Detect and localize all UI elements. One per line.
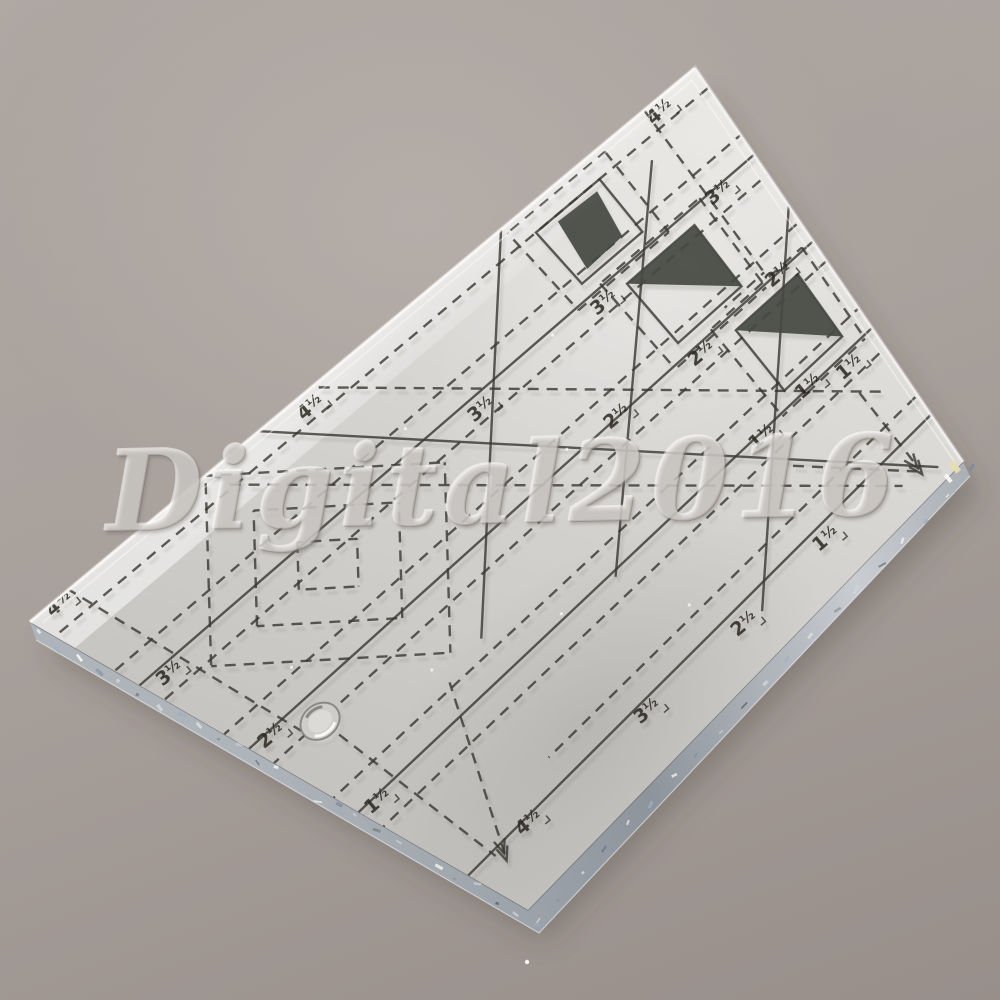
dust-speck [551,334,554,337]
dust-speck [565,448,568,451]
bevel-sparkle [177,714,185,716]
dust-speck [688,603,691,606]
ruler-product-photo: 4½3½2½1½4½3½2½1½3½2½1½4½3½2½1½3½2½1½4½ [0,0,1000,1000]
bevel-sparkle [217,739,220,740]
bevel-sparkle [582,872,584,874]
bevel-sparkle [474,883,481,884]
photo-background: 4½3½2½1½4½3½2½1½3½2½1½4½3½2½1½3½2½1½4½ D… [0,0,1000,1000]
grid-line-dashed [297,542,298,590]
bevel-sparkle [534,924,539,925]
bevel-sparkle [117,680,119,682]
bevel-sparkle [970,464,975,470]
dust-speck [560,612,563,615]
bevel-sparkle [274,766,278,767]
bevel-sparkle [556,900,559,902]
bevel-sparkle [136,694,139,695]
background-speck [525,960,529,964]
dust-speck [290,666,293,669]
dust-speck [404,427,407,430]
bevel-sparkle [496,903,499,904]
dust-speck [430,668,433,671]
